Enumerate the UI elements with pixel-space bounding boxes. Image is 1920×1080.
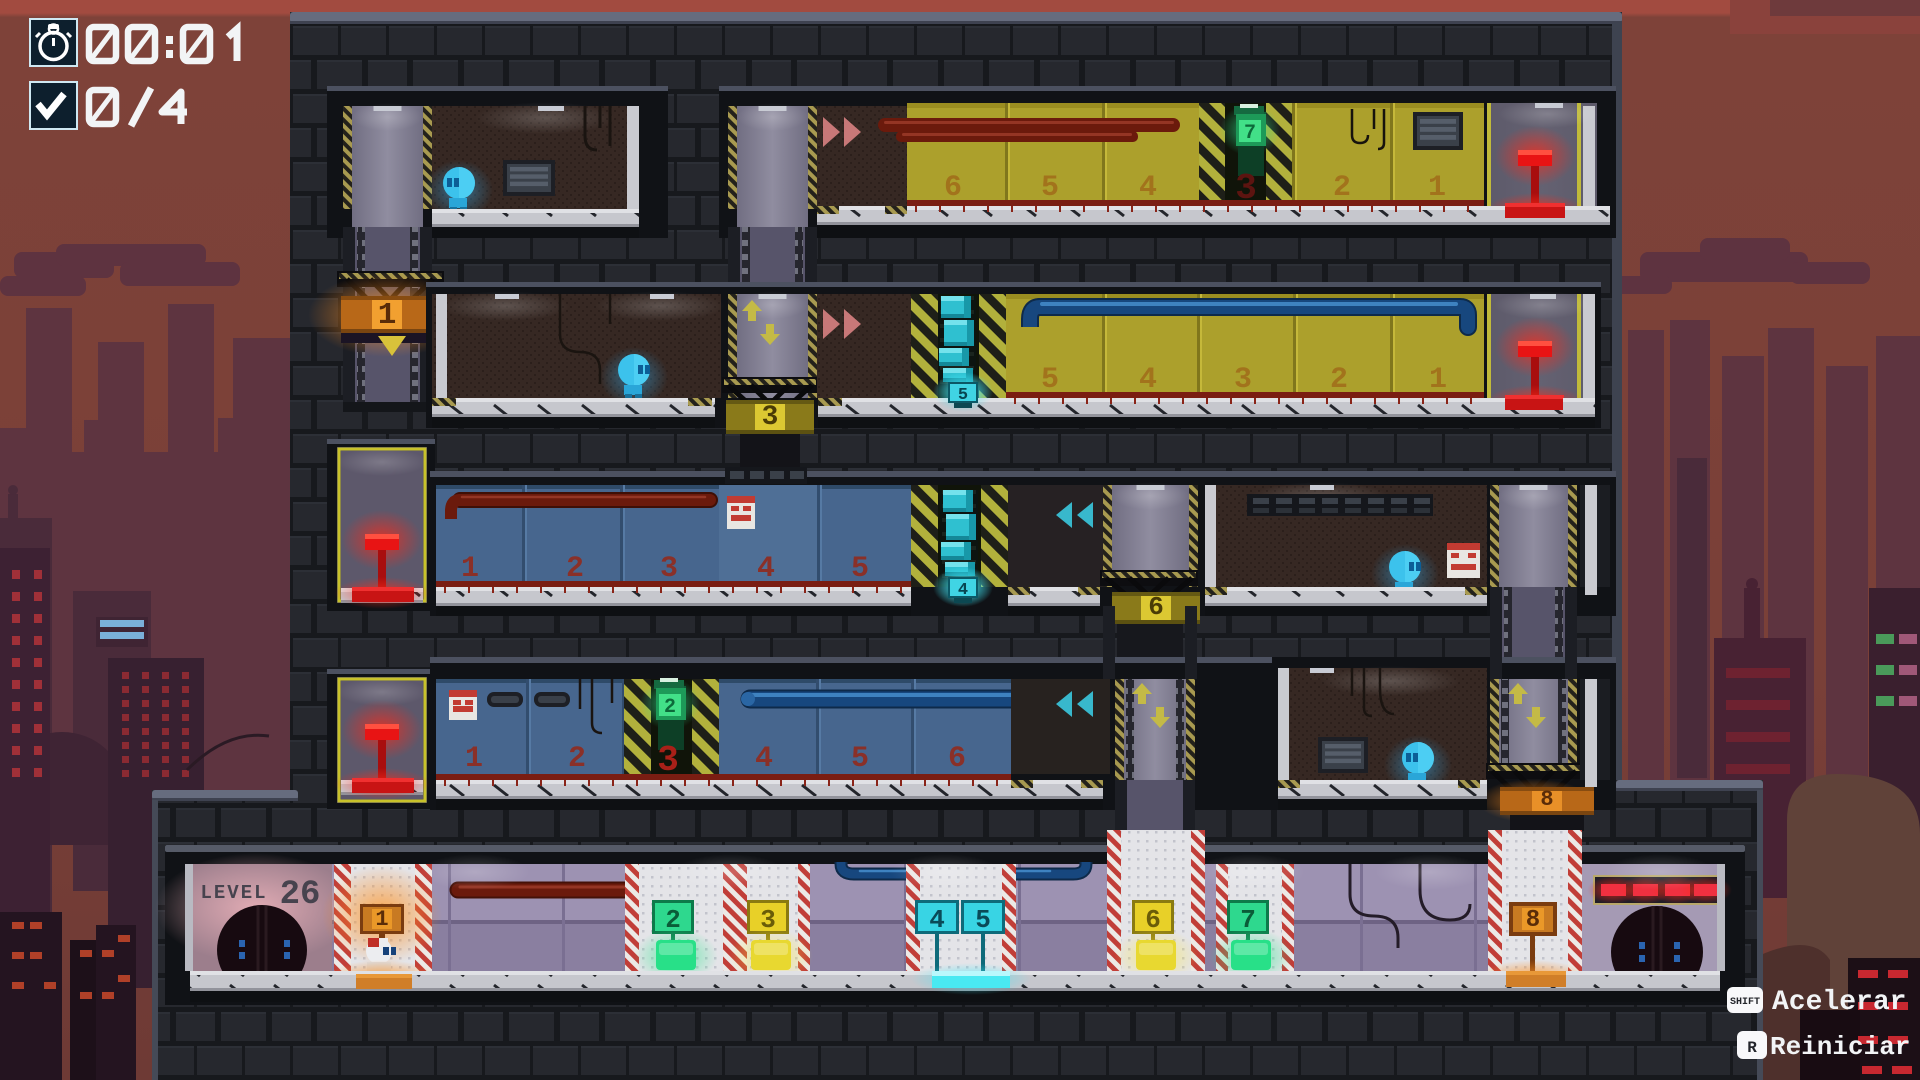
svg-text:1: 1 (1429, 363, 1447, 397)
svg-text:1: 1 (465, 742, 483, 776)
svg-text:7: 7 (1244, 122, 1256, 145)
svg-text:2: 2 (1330, 363, 1348, 397)
svg-text:5: 5 (1041, 363, 1059, 397)
svg-text:5: 5 (851, 552, 869, 586)
svg-text:4: 4 (1139, 363, 1157, 397)
svg-text:SHIFT: SHIFT (1730, 997, 1760, 1008)
svg-text:5: 5 (958, 386, 968, 405)
svg-text:5: 5 (851, 742, 869, 776)
svg-text:R: R (1747, 1039, 1757, 1057)
svg-text:1: 1 (378, 298, 397, 333)
svg-text:1: 1 (375, 907, 388, 932)
svg-text:4: 4 (1139, 171, 1157, 205)
svg-text:1: 1 (1428, 171, 1446, 205)
svg-text:6: 6 (944, 171, 962, 205)
svg-text:8: 8 (1526, 907, 1540, 934)
svg-text:2: 2 (1333, 171, 1351, 205)
svg-text:3: 3 (1234, 363, 1252, 397)
svg-text:26: 26 (280, 876, 321, 914)
svg-text:2: 2 (566, 552, 584, 586)
svg-text:6: 6 (948, 742, 966, 776)
svg-text:4: 4 (958, 581, 968, 600)
svg-text:LEVEL: LEVEL (200, 882, 267, 904)
svg-text:2: 2 (664, 696, 676, 719)
svg-text:1: 1 (461, 552, 479, 586)
svg-text:4: 4 (755, 742, 773, 776)
svg-text:4: 4 (757, 552, 775, 586)
svg-text:6: 6 (1148, 592, 1164, 622)
svg-text:4: 4 (929, 905, 945, 935)
svg-text:Reiniciar: Reiniciar (1770, 1032, 1910, 1062)
svg-text:8: 8 (1540, 787, 1553, 812)
svg-text:3: 3 (762, 402, 779, 433)
svg-text:2: 2 (568, 742, 586, 776)
svg-text:3: 3 (660, 552, 678, 586)
svg-text:5: 5 (975, 905, 991, 935)
svg-text:Acelerar: Acelerar (1772, 987, 1906, 1018)
svg-text:5: 5 (1041, 171, 1059, 205)
